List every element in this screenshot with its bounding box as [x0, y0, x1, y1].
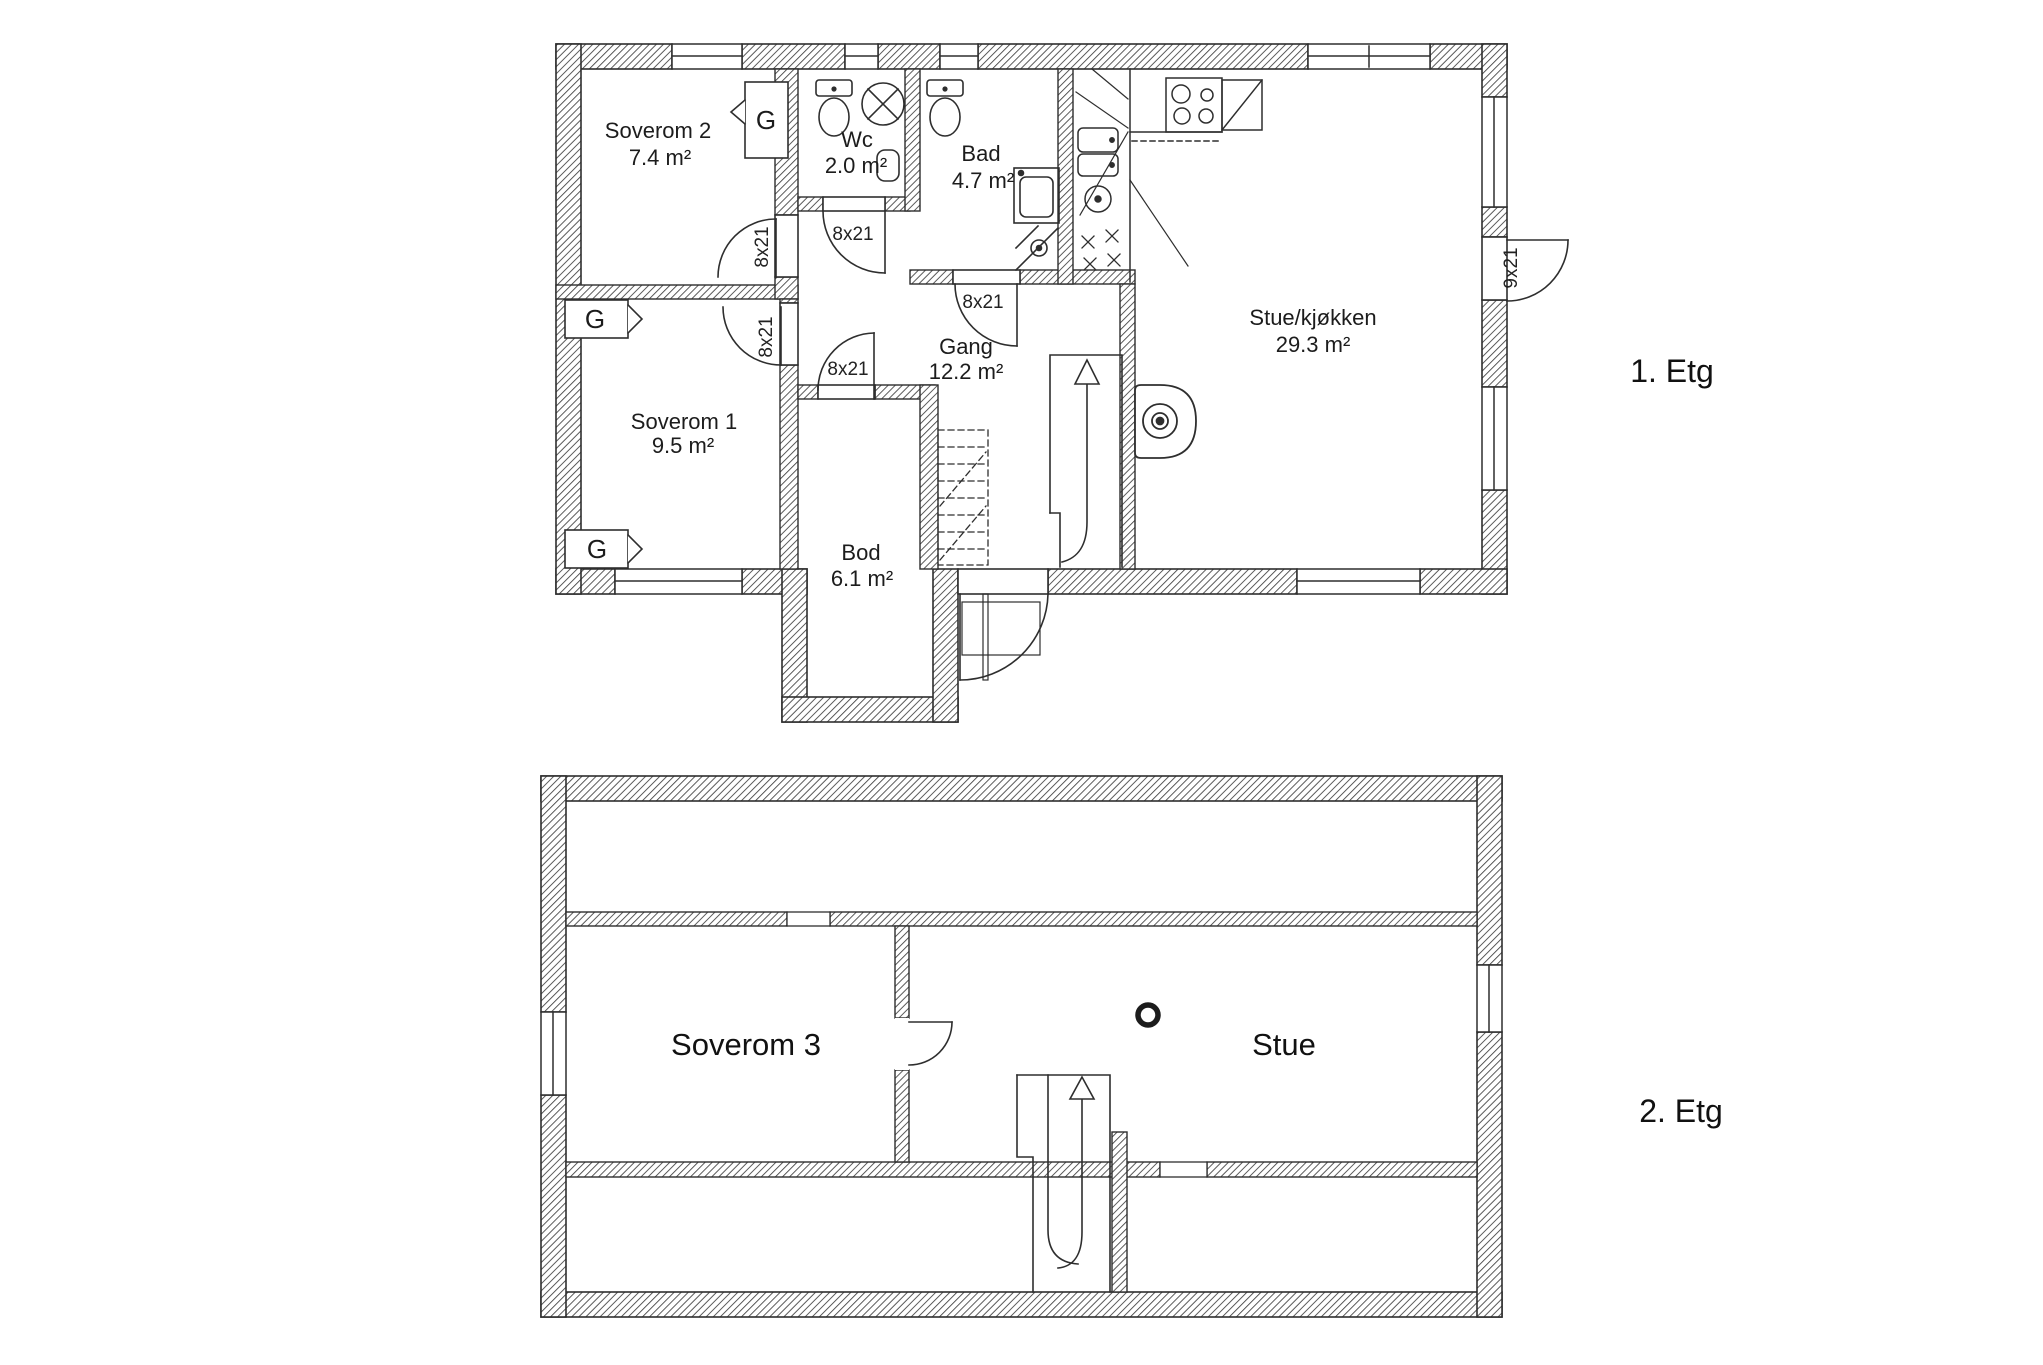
stairs-upper-flight-dashed	[938, 430, 988, 565]
label-wc-area: 2.0 m²	[825, 153, 887, 178]
entry-door-bottom	[958, 569, 1048, 680]
kitchen-fixtures	[1076, 69, 1262, 282]
stairs-up-arrow-line	[1062, 382, 1087, 562]
window-stue-top	[1308, 44, 1430, 69]
washer-bad	[1014, 168, 1059, 223]
label-wc: Wc	[841, 127, 873, 152]
floor1-exterior-walls	[556, 44, 1507, 722]
floor2-title: 2. Etg	[1639, 1093, 1723, 1129]
door-size-soverom1: 8x21	[756, 316, 777, 357]
stairs2-up-arrow-line	[1058, 1097, 1082, 1268]
label-gang: Gang	[939, 334, 993, 359]
floor2-kneewall-gaps	[787, 912, 1207, 1177]
label-bad: Bad	[961, 141, 1000, 166]
stairs2-up-arrowhead	[1070, 1077, 1094, 1099]
window-floor2-right	[1477, 965, 1502, 1032]
door-size-entry: 9x21	[1501, 247, 1522, 288]
chimney-floor2	[1138, 1005, 1158, 1025]
floor2-plan: Soverom 3 Stue 2. Etg	[541, 776, 1723, 1317]
toilet-bad	[927, 80, 963, 136]
window-wc-top	[845, 44, 878, 69]
shower-wc	[862, 83, 904, 125]
wardrobe-label-soverom1-bottom: G	[587, 534, 607, 564]
label-stue2: Stue	[1252, 1027, 1316, 1062]
stairs-floor2	[1017, 1075, 1110, 1292]
window-stue-right-upper	[1482, 97, 1507, 207]
label-bad-area: 4.7 m²	[952, 168, 1014, 193]
window-soverom1-bottom	[615, 569, 742, 594]
label-stue-kjokken-area: 29.3 m²	[1276, 332, 1351, 357]
kitchen-fridge	[1222, 80, 1262, 130]
door-soverom3	[895, 1018, 952, 1070]
label-soverom1: Soverom 1	[631, 409, 737, 434]
label-stue-kjokken: Stue/kjøkken	[1249, 305, 1376, 330]
floorplan-drawing: Soverom 2 7.4 m² Wc 2.0 m² Bad 4.7 m² St…	[0, 0, 2043, 1365]
label-soverom2-area: 7.4 m²	[629, 145, 691, 170]
floorplan-page: Soverom 2 7.4 m² Wc 2.0 m² Bad 4.7 m² St…	[0, 0, 2043, 1365]
floor1-title: 1. Etg	[1630, 353, 1714, 389]
floor1-plan: Soverom 2 7.4 m² Wc 2.0 m² Bad 4.7 m² St…	[556, 44, 1714, 722]
kitchen-sink	[1078, 128, 1118, 176]
window-bad-top	[940, 44, 978, 69]
door-size-bad: 8x21	[962, 292, 1003, 313]
label-soverom1-area: 9.5 m²	[652, 433, 714, 458]
label-soverom3: Soverom 3	[671, 1027, 821, 1062]
stairs-up-arrowhead	[1075, 360, 1099, 384]
kitchen-stove	[1166, 78, 1222, 132]
label-soverom2: Soverom 2	[605, 118, 711, 143]
window-soverom2-top	[672, 44, 742, 69]
label-bod-area: 6.1 m²	[831, 566, 893, 591]
stairs-floor1	[938, 355, 1122, 567]
floor2-interior-walls	[566, 912, 1477, 1292]
shower-bad	[1016, 226, 1058, 270]
label-gang-area: 12.2 m²	[929, 359, 1004, 384]
kitchen-tile-marks	[1082, 230, 1120, 270]
door-size-soverom2: 8x21	[752, 226, 773, 267]
label-bod: Bod	[841, 540, 880, 565]
door-size-wc: 8x21	[832, 224, 873, 245]
entry-door-9x21	[1482, 237, 1568, 301]
door-size-bod: 8x21	[827, 359, 868, 380]
window-stue-right-lower	[1482, 387, 1507, 490]
chimney-floor1	[1135, 385, 1196, 458]
wardrobe-label-soverom1-top: G	[585, 304, 605, 334]
window-floor2-left	[541, 1012, 566, 1095]
wardrobe-label-soverom2: G	[756, 105, 776, 135]
window-stue-bottom	[1297, 569, 1420, 594]
